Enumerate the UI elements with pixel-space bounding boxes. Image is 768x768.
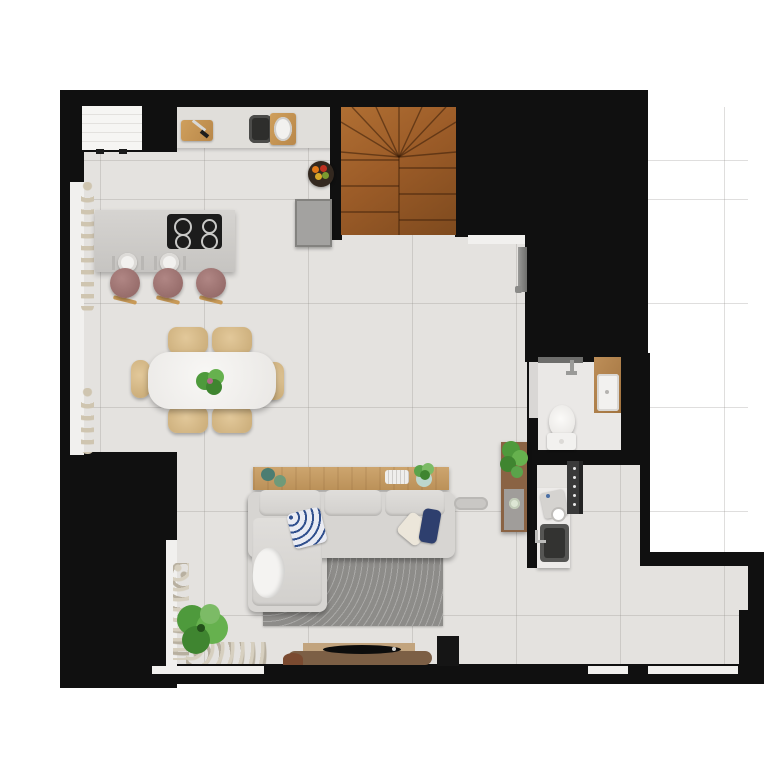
stairs-treads-icon [341,107,456,235]
sink-basin [274,117,292,141]
sofa-tray [454,497,488,510]
dining-chair [168,327,208,354]
bathroom-door-opening [529,362,538,418]
dining-chair [212,327,252,354]
sink-basin-inner [544,528,565,558]
fruit-orange [312,166,319,173]
shower-glass [538,357,583,363]
wall-right [640,460,650,562]
wall-block-top-right [455,90,648,237]
burner [175,234,191,250]
sideboard-plate [509,498,520,509]
window-sill-bottom-3 [152,666,264,674]
wall-block-bottom-left [60,452,177,688]
tv [323,645,401,654]
wall-top [60,90,470,107]
basin-drain [605,390,609,394]
bar-stool [196,268,226,298]
espresso-cup [551,507,566,522]
panel-dot [573,503,576,506]
panel-dot [573,467,576,470]
refrigerator [295,199,332,247]
panel-bracket [119,149,127,154]
floor-plant-icon [170,598,240,664]
bar-stool [110,268,140,298]
decor-bowl-teal [261,468,275,481]
cutlery [154,256,157,270]
burner [201,233,218,250]
cutlery [112,256,115,270]
window-sill-bottom-2 [648,666,738,674]
cutlery [183,256,186,270]
panel-dot [573,485,576,488]
fruit-green [322,172,329,179]
window-sill-bottom-1 [588,666,628,674]
burner [202,219,217,234]
curtain-left-lower [81,388,94,454]
fruit-yellow [315,173,322,180]
dining-chair [168,406,208,433]
faucet-spout [535,540,546,543]
panel-dot [573,494,576,497]
sideboard-plant-icon [497,438,531,486]
small-pot [283,653,303,665]
machine-button [546,494,550,498]
staircase [341,107,456,235]
wall-protrusion-right [748,562,764,614]
cutlery [141,256,144,270]
panel-bracket [96,149,104,154]
fruit-red [320,165,327,172]
floor-plan-canvas [0,0,768,768]
tv-stand-dot [392,647,396,651]
wall-block-right [525,237,648,362]
decor-ribbed [385,470,409,484]
toilet-flush-button [559,439,564,444]
decor-bowl-green [274,475,286,487]
white-brick-panel [82,106,142,150]
table-plant-icon [192,366,232,400]
shower-faucet-spout [566,371,577,375]
curtain-left-upper [81,182,94,312]
speaker [437,636,459,666]
window-sill-east [468,235,525,244]
sideboard-surface [504,489,524,530]
wall-bottom-column [628,664,648,684]
sofa-back-cushion [324,490,382,516]
wall-protrusion-top [640,552,764,566]
radiator-valve [515,286,522,293]
panel-dot [573,476,576,479]
console-plant-icon [410,460,438,488]
bar-stool [153,268,183,298]
dining-chair [212,406,252,433]
kitchen-sink [249,115,272,143]
